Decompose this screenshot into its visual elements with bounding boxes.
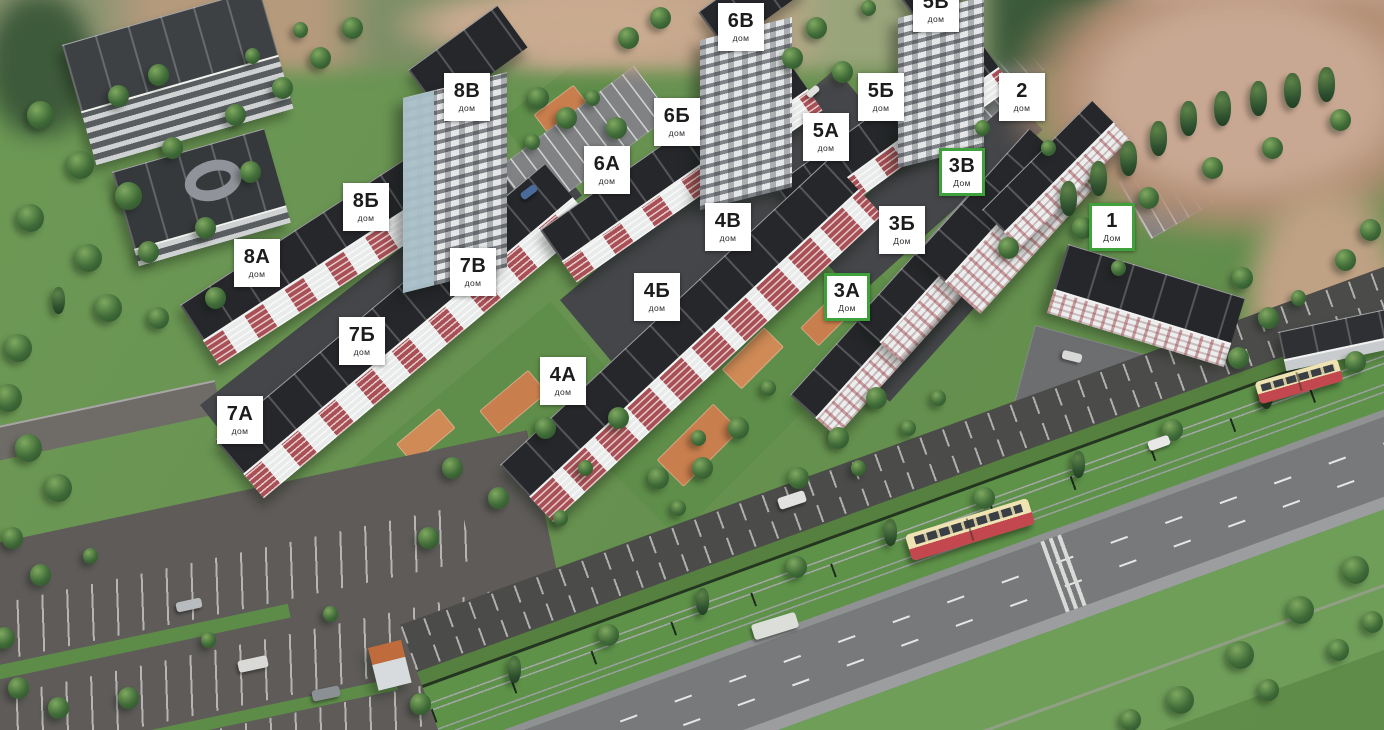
building-label-4a[interactable]: 4Адом bbox=[540, 357, 586, 405]
tree bbox=[931, 390, 946, 406]
building-label-4v[interactable]: 4Вдом bbox=[705, 203, 751, 251]
tree bbox=[52, 287, 65, 314]
label-text: 5А bbox=[813, 121, 840, 141]
label-text: 1 bbox=[1106, 211, 1118, 231]
label-sub: дом bbox=[928, 15, 945, 24]
building-label-3a[interactable]: 3АДом bbox=[824, 273, 870, 321]
building-label-5a[interactable]: 5Адом bbox=[803, 113, 849, 161]
label-text: 4А bbox=[550, 365, 577, 385]
tree bbox=[0, 384, 22, 412]
access-road bbox=[0, 380, 222, 465]
building-label-5v[interactable]: 5Вдом bbox=[913, 0, 959, 32]
tree bbox=[901, 420, 916, 436]
label-sub: дом bbox=[358, 214, 375, 223]
building-label-6v[interactable]: 6Вдом bbox=[718, 3, 764, 51]
building-label-8v[interactable]: 8Вдом bbox=[444, 73, 490, 121]
label-text: 7А bbox=[227, 404, 254, 424]
label-text: 8Б bbox=[353, 191, 380, 211]
building-label-7v[interactable]: 7Вдом bbox=[450, 248, 496, 296]
tree bbox=[75, 244, 102, 272]
label-text: 4Б bbox=[644, 281, 671, 301]
label-text: 8В bbox=[454, 81, 481, 101]
label-sub: Дом bbox=[1103, 234, 1121, 243]
building-label-3v[interactable]: 3ВДом bbox=[939, 148, 985, 196]
tree bbox=[67, 151, 94, 179]
label-sub: дом bbox=[873, 104, 890, 113]
label-sub: дом bbox=[599, 177, 616, 186]
label-sub: дом bbox=[249, 270, 266, 279]
label-text: 6Б bbox=[664, 106, 691, 126]
label-sub: дом bbox=[459, 104, 476, 113]
label-sub: дом bbox=[720, 234, 737, 243]
building-label-7b[interactable]: 7Бдом bbox=[339, 317, 385, 365]
label-sub: Дом bbox=[953, 179, 971, 188]
label-sub: Дом bbox=[838, 304, 856, 313]
tree bbox=[148, 307, 169, 329]
label-text: 5В bbox=[923, 0, 950, 12]
building-label-6a[interactable]: 6Адом bbox=[584, 146, 630, 194]
building-label-2[interactable]: 2дом bbox=[999, 73, 1045, 121]
label-text: 6В bbox=[728, 11, 755, 31]
building-label-1[interactable]: 1Дом bbox=[1089, 203, 1135, 251]
label-sub: дом bbox=[649, 304, 666, 313]
label-sub: дом bbox=[354, 348, 371, 357]
label-sub: Дом bbox=[893, 237, 911, 246]
label-text: 2 bbox=[1016, 81, 1028, 101]
building-label-5b[interactable]: 5Бдом bbox=[858, 73, 904, 121]
label-text: 5Б bbox=[868, 81, 895, 101]
label-sub: дом bbox=[555, 388, 572, 397]
building-label-8b[interactable]: 8Бдом bbox=[343, 183, 389, 231]
building-label-7a[interactable]: 7Адом bbox=[217, 396, 263, 444]
label-text: 3Б bbox=[889, 214, 916, 234]
building-label-4b[interactable]: 4Бдом bbox=[634, 273, 680, 321]
label-text: 3В bbox=[949, 156, 976, 176]
label-text: 8А bbox=[244, 247, 271, 267]
label-sub: дом bbox=[669, 129, 686, 138]
label-text: 7В bbox=[460, 256, 487, 276]
label-sub: дом bbox=[232, 427, 249, 436]
label-sub: дом bbox=[465, 279, 482, 288]
label-sub: дом bbox=[818, 144, 835, 153]
tree bbox=[5, 334, 32, 362]
label-text: 3А bbox=[834, 281, 861, 301]
label-text: 7Б bbox=[349, 325, 376, 345]
tree bbox=[45, 474, 72, 502]
building-label-3b[interactable]: 3БДом bbox=[879, 206, 925, 254]
label-text: 6А bbox=[594, 154, 621, 174]
building-label-8a[interactable]: 8Адом bbox=[234, 239, 280, 287]
label-sub: дом bbox=[1014, 104, 1031, 113]
label-sub: дом bbox=[733, 34, 750, 43]
masterplan-scene: 8Адом 8Бдом 8Вдом 7Адом 7Бдом 7Вдом 6Адо… bbox=[0, 0, 1384, 730]
label-text: 4В bbox=[715, 211, 742, 231]
tree bbox=[95, 294, 122, 322]
building-label-6b[interactable]: 6Бдом bbox=[654, 98, 700, 146]
tree bbox=[17, 204, 44, 232]
